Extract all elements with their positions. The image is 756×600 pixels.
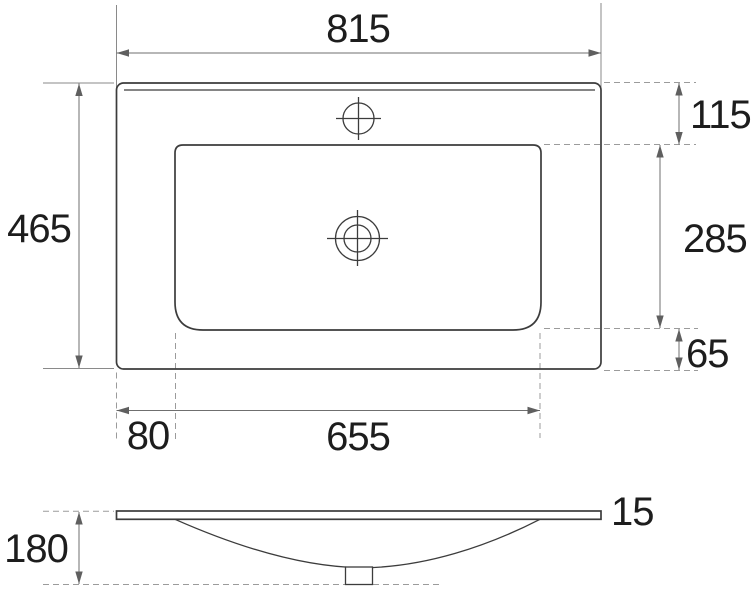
basin-to-front-edge-label: 65	[686, 332, 729, 376]
drain-icon	[327, 210, 388, 266]
top-view: 815 465 115 285 65 80 655	[7, 3, 751, 459]
countertop-section	[117, 511, 602, 519]
drain-stub	[346, 567, 373, 585]
rim-thickness-label: 15	[611, 490, 654, 534]
left-edge-to-basin-label: 80	[127, 414, 170, 458]
overall-depth-label: 465	[7, 207, 71, 251]
basin-width-label: 655	[326, 415, 390, 459]
technical-drawing-canvas: 815 465 115 285 65 80 655 180 15	[0, 0, 756, 600]
back-edge-to-basin-label: 115	[690, 93, 751, 137]
faucet-hole-icon	[336, 97, 381, 140]
overall-width-label: 815	[326, 7, 390, 51]
basin-depth-label: 285	[683, 217, 747, 261]
overall-height-label: 180	[4, 527, 68, 571]
washbasin-drawing: 815 465 115 285 65 80 655 180 15	[0, 0, 756, 600]
basin-bowl-profile	[175, 519, 540, 568]
side-view: 180 15	[4, 490, 653, 585]
